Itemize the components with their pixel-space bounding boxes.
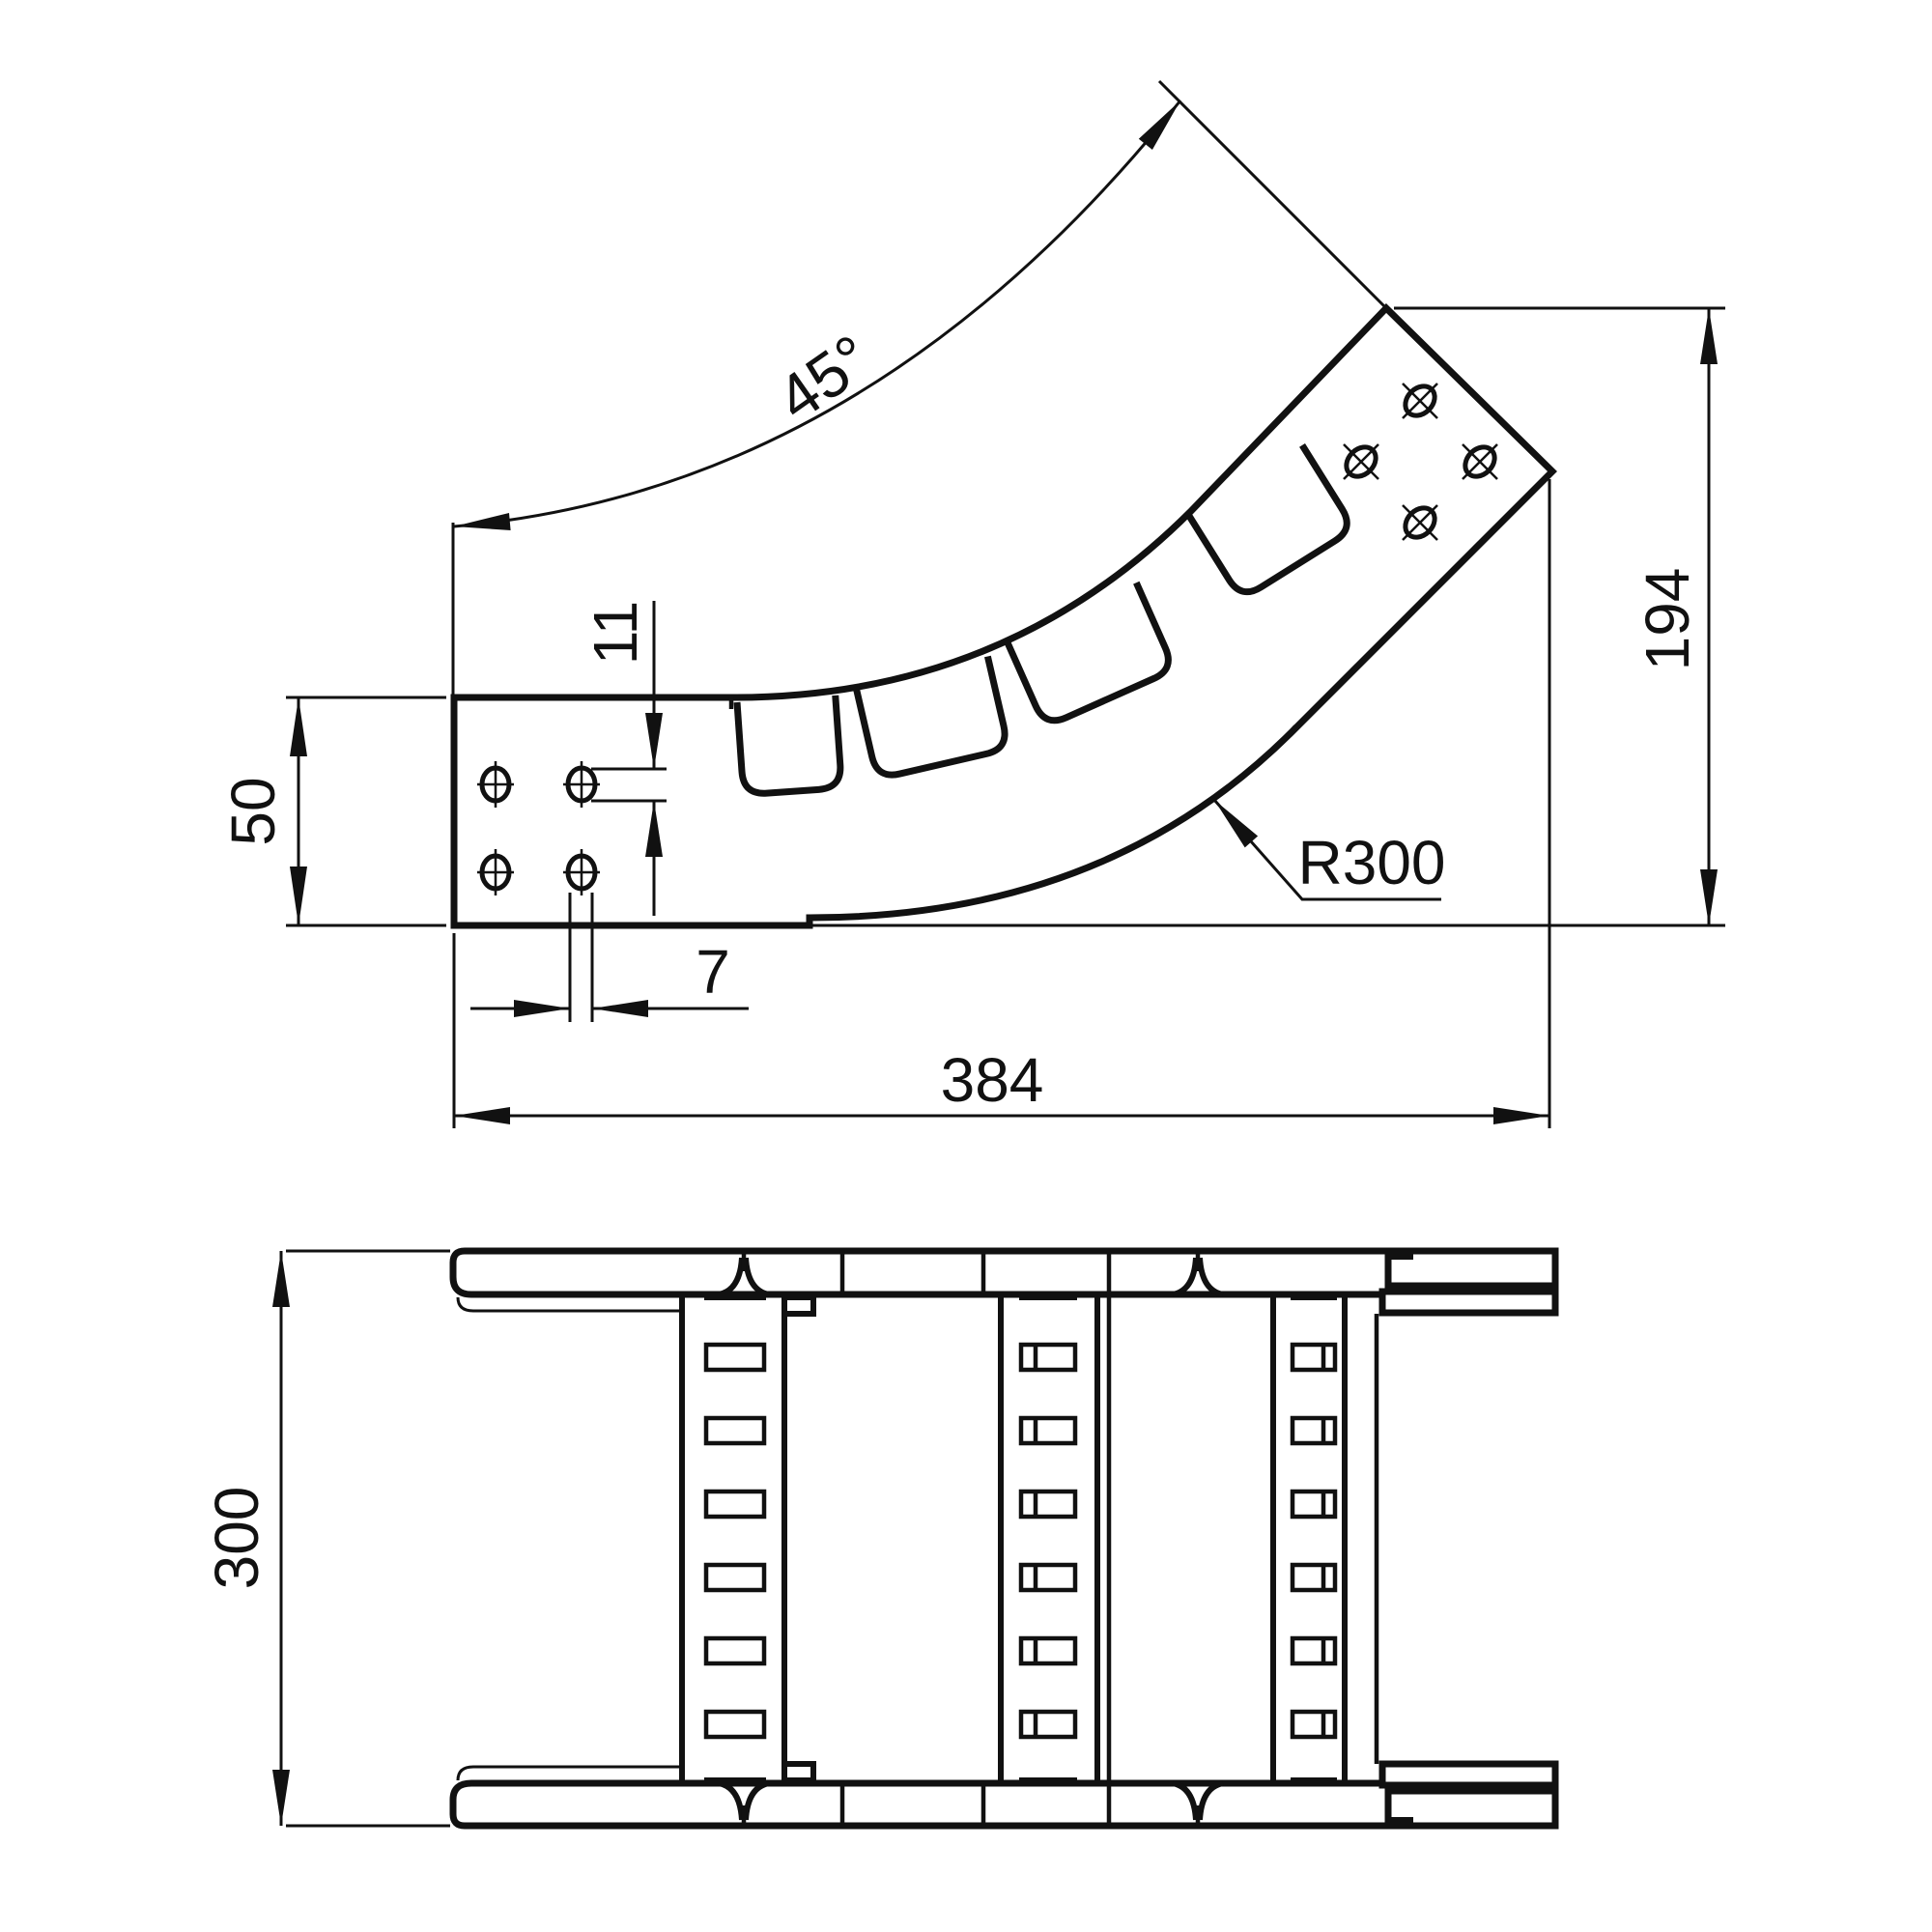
bottom-side-rail <box>453 1783 1388 1826</box>
plan-view-dimensions: 300 <box>202 1251 450 1826</box>
extension-lines <box>286 1251 450 1826</box>
plan-view <box>453 1251 1555 1826</box>
side-view-dimensions: 45° 11 50 7 384 R300 194 <box>218 81 1725 1128</box>
angle-dim-label: 45° <box>764 321 884 435</box>
technical-drawing-canvas: 45° 11 50 7 384 R300 194 <box>0 0 1932 1932</box>
rung-slots-column-2 <box>1021 1345 1075 1737</box>
end-width-dim-label: 50 <box>218 777 288 845</box>
slot-width-dim-label: 7 <box>696 937 730 1007</box>
bend-radius-label: R300 <box>1298 828 1446 897</box>
slot-length-dim-label: 11 <box>581 601 650 665</box>
dimension-arrowheads <box>290 100 1718 1124</box>
flange-notches <box>1388 1251 1413 1826</box>
angle-dimension-arc <box>454 100 1180 526</box>
rung-slots-column-3 <box>1293 1345 1335 1737</box>
tray-width-dim-label: 300 <box>202 1487 271 1590</box>
rail-lip-lines <box>458 1297 682 1780</box>
rail-joint-lines <box>744 1251 1377 1826</box>
rail-joint-fillets <box>719 1258 1223 1820</box>
length-dim-label: 384 <box>941 1045 1044 1115</box>
top-end-flange-inner <box>1382 1292 1555 1313</box>
bottom-end-flange-inner <box>1382 1764 1555 1785</box>
rise-height-dim-label: 194 <box>1633 568 1702 671</box>
extension-lines <box>286 81 1725 1128</box>
top-side-rail <box>453 1251 1388 1294</box>
rung-column-edges <box>682 1294 1345 1783</box>
rung-hooks <box>784 1297 813 1780</box>
drawing-sheet: 45° 11 50 7 384 R300 194 <box>0 0 1932 1932</box>
rung-slots-column-1 <box>706 1345 764 1737</box>
